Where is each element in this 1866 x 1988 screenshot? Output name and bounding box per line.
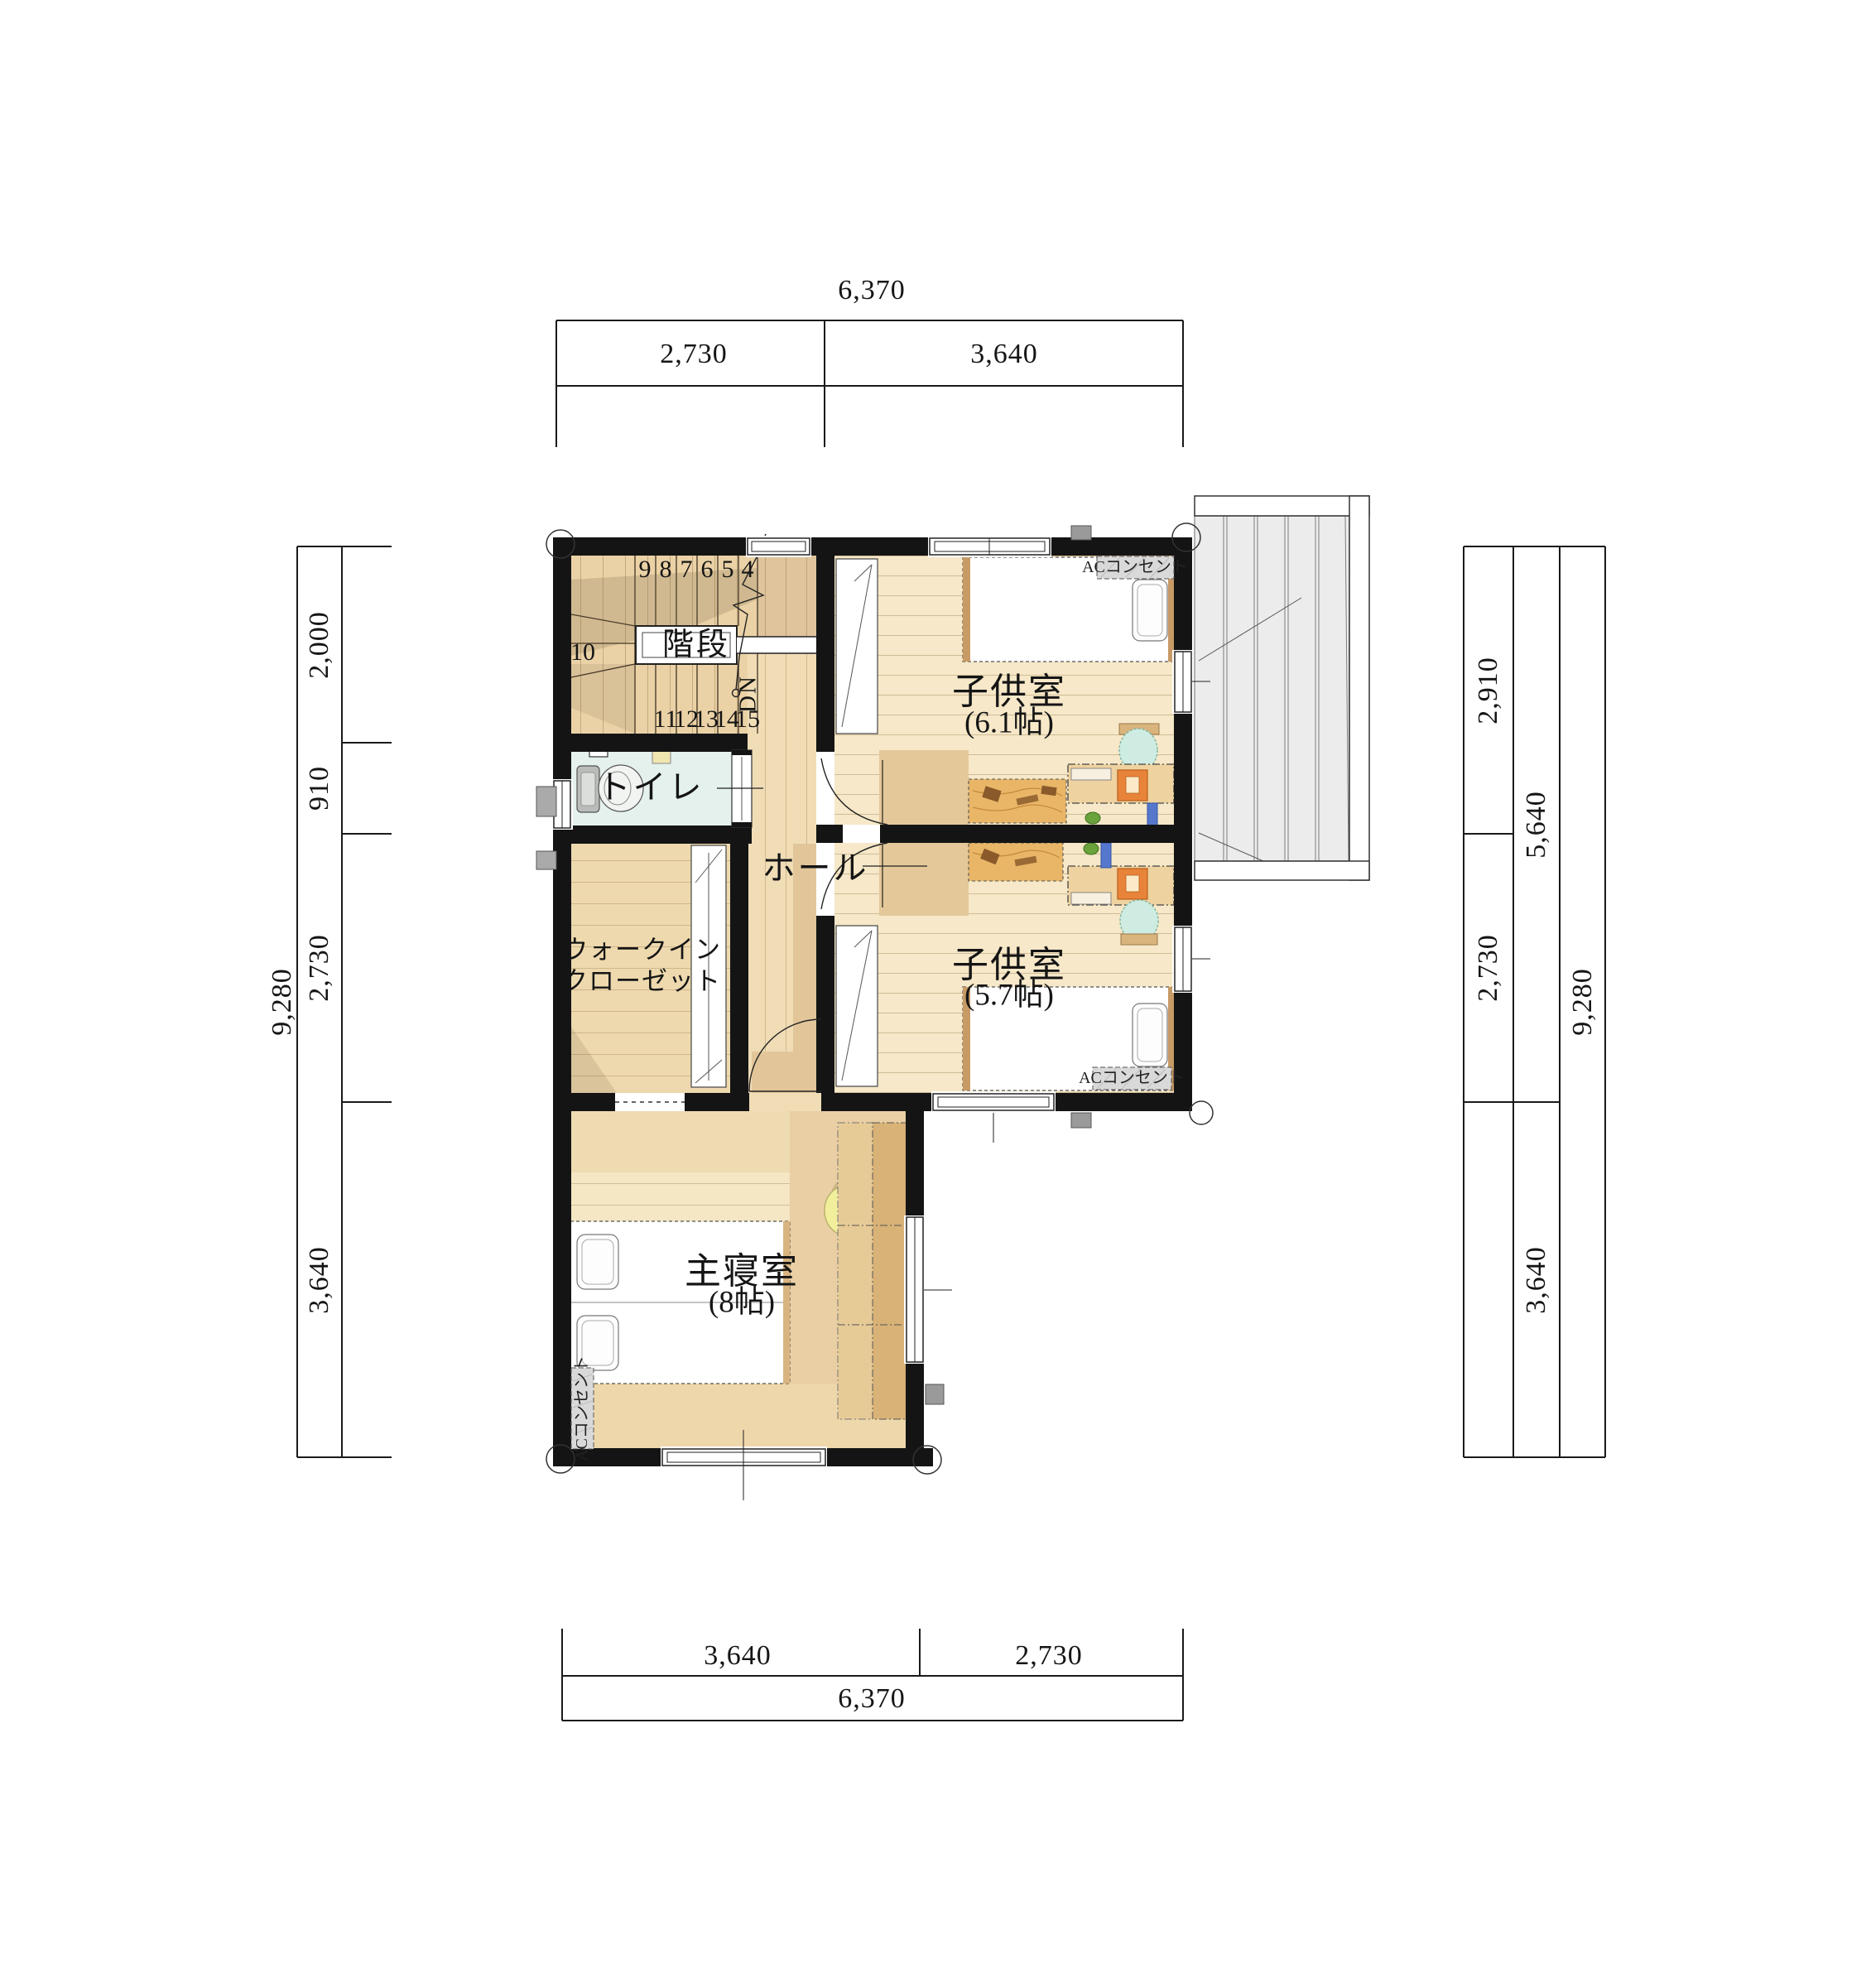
dim-bottom-seg1: 3,640	[704, 1642, 772, 1670]
vent-toilet	[536, 787, 556, 816]
wic-label-line2: クローゼット	[562, 969, 721, 994]
stair-dn-label: DN	[737, 675, 761, 713]
dim-left-seg4: 3,640	[305, 1246, 334, 1314]
wall-wic-east	[730, 844, 748, 1102]
dim-bottom-seg2: 2,730	[1015, 1642, 1083, 1670]
stairs-label: 階段	[662, 629, 730, 661]
wall-child-divider-stub	[816, 825, 843, 843]
wall-east-child	[1174, 537, 1192, 1111]
stair-step-7: 7	[681, 557, 693, 582]
wall-hall-child-upper	[816, 556, 834, 752]
dim-left-seg2: 910	[305, 766, 334, 811]
dim-left-seg1: 2,000	[305, 611, 334, 679]
window-east-master	[904, 1215, 952, 1364]
landing-floor	[757, 556, 816, 637]
grid-circle-child-se	[1190, 1101, 1213, 1124]
child2-toy-green	[1084, 843, 1099, 854]
dim-left-total: 9,280	[268, 968, 296, 1036]
ac-outlet-label-master: ACコンセント	[574, 1355, 590, 1461]
wall-toilet-south	[553, 826, 752, 844]
wall-stairs-south	[553, 734, 748, 752]
wall-north	[553, 537, 1192, 556]
master-wardrobe	[838, 1123, 907, 1419]
dim-left-seg3: 2,730	[305, 934, 334, 1002]
child1-size: (6.1帖)	[964, 708, 1054, 739]
dim-top-total: 6,370	[838, 277, 906, 305]
dim-top-seg1: 2,730	[660, 340, 728, 368]
master-size: (8帖)	[709, 1288, 775, 1318]
dim-right-mid1: 5,640	[1522, 791, 1551, 859]
ac-unit-child2	[1071, 1113, 1091, 1128]
vent-wic	[536, 851, 556, 869]
dim-right-seg1: 2,910	[1474, 657, 1503, 724]
window-north-child1	[928, 536, 1051, 557]
stair-step-6: 6	[701, 557, 714, 582]
stair-step-10: 10	[570, 640, 595, 665]
floor-plan-page: 6,370 2,730 3,640 3,640 2,730 6,370 9,28…	[0, 0, 1866, 1988]
window-south-child2	[931, 1091, 1056, 1143]
master-label: 主寝室	[685, 1254, 799, 1290]
window-east-child2	[1172, 926, 1210, 993]
wall-master-west	[553, 1111, 571, 1466]
hall-label: ホール	[762, 852, 869, 885]
child1-label: 子供室	[952, 674, 1066, 710]
dim-right-total: 9,280	[1569, 968, 1597, 1036]
child2-rug	[969, 843, 1063, 881]
stair-step-5: 5	[722, 557, 734, 582]
wall-hall-child-lower	[816, 916, 834, 1102]
ac-outlet-label-child1: ACコンセント	[1082, 559, 1188, 575]
ac-outlet-label-child2: ACコンセント	[1079, 1070, 1185, 1086]
dim-right-mid2: 3,640	[1522, 1246, 1551, 1314]
ac-unit-master	[926, 1384, 944, 1404]
balcony	[1195, 496, 1369, 880]
stair-rail-band	[737, 637, 816, 653]
dim-bottom-total: 6,370	[838, 1685, 906, 1713]
wic-opening	[615, 1093, 685, 1111]
window-north-landing	[746, 536, 811, 557]
child2-closet	[836, 926, 878, 1086]
wic-label-line1: ウォークイン	[562, 937, 721, 963]
hall-floor-shade2	[752, 1052, 816, 1093]
toilet-label: トイレ	[598, 771, 705, 804]
dim-top-seg2: 3,640	[970, 340, 1038, 368]
wall-child-divider	[880, 825, 1192, 843]
dim-right-seg2: 2,730	[1474, 934, 1503, 1002]
child2-walkway	[879, 843, 969, 916]
stair-step-4: 4	[742, 557, 754, 582]
balcony-deck	[1195, 516, 1349, 861]
child2-size: (5.7帖)	[964, 980, 1054, 1011]
child2-toy-blue	[1101, 843, 1111, 868]
child1-rug	[969, 779, 1066, 823]
stair-step-9: 9	[639, 557, 652, 582]
ac-unit-child1	[1071, 526, 1091, 540]
child1-toy-green	[1085, 812, 1100, 824]
child1-walkway	[879, 750, 969, 825]
stair-step-8: 8	[660, 557, 672, 582]
child1-closet	[836, 559, 878, 734]
